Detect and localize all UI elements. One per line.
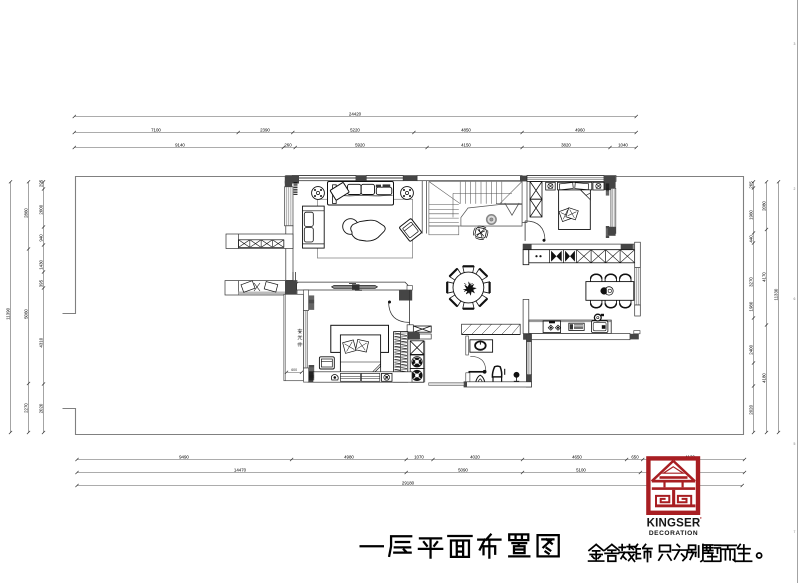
svg-text:5: 5 — [794, 442, 796, 446]
svg-text:4310: 4310 — [38, 337, 43, 347]
svg-text:4960: 4960 — [575, 127, 585, 132]
svg-text:9140: 9140 — [175, 142, 185, 147]
svg-text:1040: 1040 — [618, 142, 628, 147]
svg-text:7100: 7100 — [151, 127, 161, 132]
svg-text:2390: 2390 — [260, 127, 270, 132]
svg-text:5090: 5090 — [458, 467, 468, 472]
svg-text:5100: 5100 — [576, 467, 586, 472]
svg-text:2270: 2270 — [23, 403, 28, 413]
svg-text:600: 600 — [291, 368, 297, 372]
svg-text:395: 395 — [38, 279, 43, 287]
svg-text:295: 295 — [38, 179, 43, 187]
svg-text:29180: 29180 — [402, 480, 415, 485]
svg-text:DECORATION: DECORATION — [649, 530, 698, 537]
svg-text:940: 940 — [38, 234, 43, 242]
svg-text:KINGSER: KINGSER — [647, 518, 701, 530]
svg-text:14470: 14470 — [234, 467, 247, 472]
svg-text:4650: 4650 — [572, 454, 582, 459]
svg-text:1960: 1960 — [748, 210, 753, 220]
svg-text:9490: 9490 — [179, 454, 189, 459]
svg-text:11390: 11390 — [5, 307, 10, 319]
svg-text:265: 265 — [748, 181, 753, 189]
svg-text:6: 6 — [794, 297, 796, 301]
svg-text:2080: 2080 — [761, 201, 766, 211]
svg-text:4020: 4020 — [470, 454, 480, 459]
svg-text:1070: 1070 — [414, 454, 424, 459]
svg-text:11330: 11330 — [773, 288, 778, 300]
svg-text:5220: 5220 — [350, 127, 360, 132]
svg-text:4180: 4180 — [761, 373, 766, 383]
svg-text:2020: 2020 — [38, 403, 43, 413]
svg-text:4980: 4980 — [344, 454, 354, 459]
svg-text:650: 650 — [631, 454, 639, 459]
svg-text:1430: 1430 — [38, 259, 43, 269]
svg-text:440: 440 — [748, 235, 753, 243]
svg-text:2000: 2000 — [38, 204, 43, 214]
svg-text:5920: 5920 — [355, 142, 365, 147]
svg-text:7: 7 — [794, 530, 796, 534]
svg-text:3820: 3820 — [561, 142, 571, 147]
svg-text:3: 3 — [794, 42, 796, 46]
svg-text:4150: 4150 — [461, 142, 471, 147]
svg-text:2400: 2400 — [748, 344, 753, 354]
svg-text:2860: 2860 — [23, 208, 28, 218]
svg-text:2: 2 — [794, 187, 796, 191]
svg-text:4850: 4850 — [461, 127, 471, 132]
svg-text:1980: 1980 — [748, 301, 753, 311]
svg-text:4170: 4170 — [761, 272, 766, 282]
svg-text:3270: 3270 — [748, 277, 753, 287]
svg-text:2020: 2020 — [748, 404, 753, 414]
svg-text:5060: 5060 — [23, 309, 28, 319]
svg-text:24420: 24420 — [349, 111, 362, 116]
svg-text:260: 260 — [284, 142, 292, 147]
